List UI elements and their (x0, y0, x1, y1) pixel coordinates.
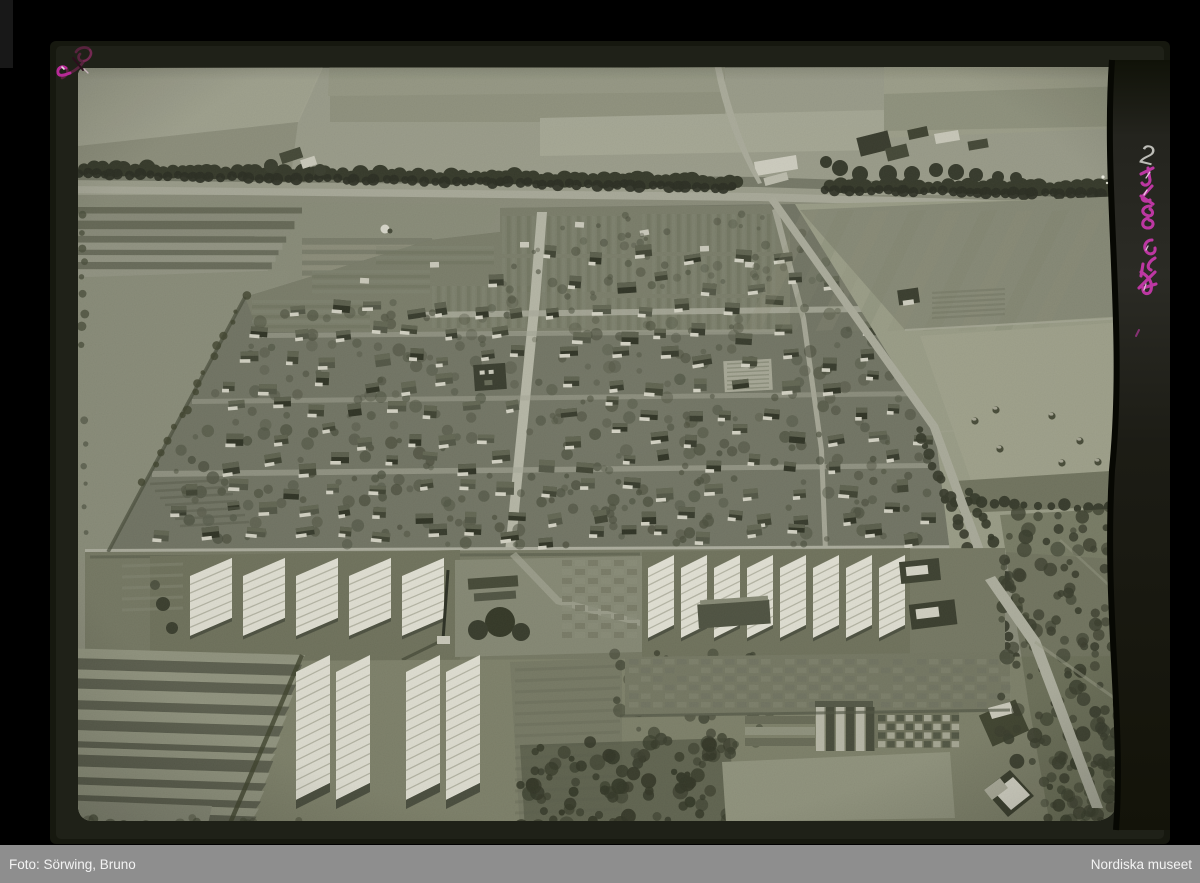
svg-text:Nordiska museet: Nordiska museet (1091, 857, 1193, 872)
svg-text:Foto: Sörwing, Bruno: Foto: Sörwing, Bruno (9, 857, 136, 872)
